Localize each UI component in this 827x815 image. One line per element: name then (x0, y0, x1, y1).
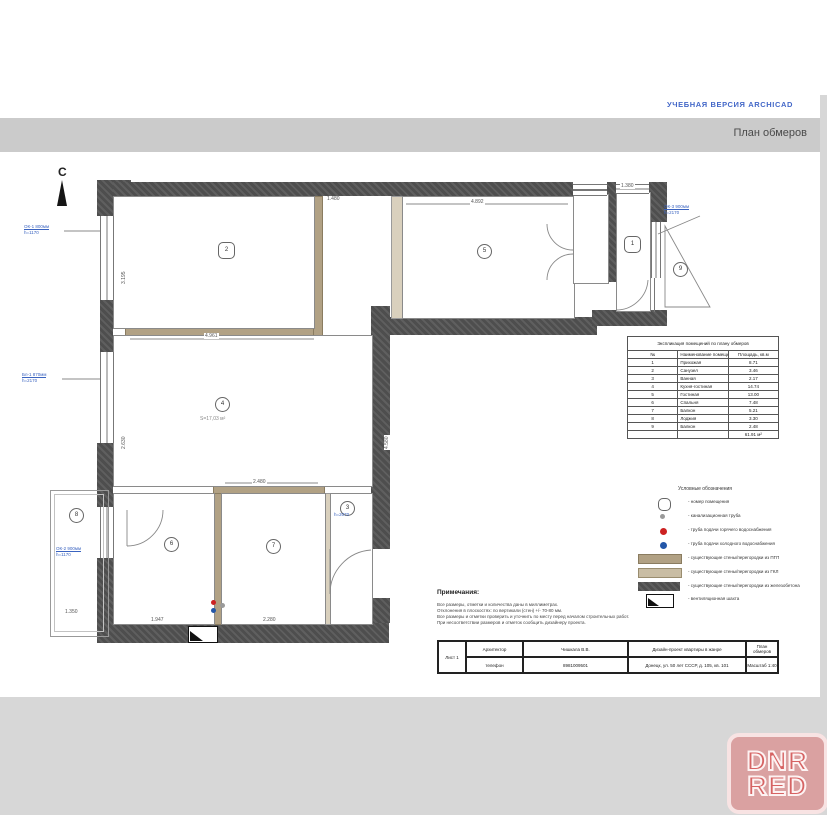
legend-label: труба подачи горячего водоснабжения (688, 527, 771, 532)
cell-name: Лоджия (678, 415, 728, 423)
dimension-label: 2.630 (121, 435, 127, 450)
vent-shaft-wedge (648, 598, 659, 606)
cell-area: 3.46 (728, 367, 778, 375)
table-row: 5Гостиная13.00 (628, 391, 779, 399)
table-total: 61.91 м² (728, 431, 778, 439)
legend-title: Условные обозначения (620, 486, 790, 492)
table-row: 4Кухня-гостиная14.74 (628, 383, 779, 391)
legend-label: существующие стены/перегородки из ПГП (688, 555, 779, 560)
cell-num: 8 (628, 415, 678, 423)
wall-segment (390, 317, 597, 335)
room-marker: 6 (164, 537, 179, 552)
table-row: 1Прихожая8.71 (628, 359, 779, 367)
screenshot-root: { "banner": { "trial": "УЧЕБНАЯ ВЕРСИЯ A… (0, 0, 827, 815)
dimension-label: 3.195 (121, 270, 127, 285)
stamp-address: Донецк, ул. 50 лет СССР, д. 105, кв. 101 (628, 657, 746, 673)
stamp-scale: Масштаб 1:40 (746, 657, 778, 673)
wall-segment (113, 182, 573, 196)
dimension-label: 1.480 (326, 196, 341, 202)
cell-num: 9 (628, 423, 678, 431)
sewer-pipe-icon (660, 514, 665, 519)
stamp-drawing-name: План обмеров (746, 641, 778, 657)
cell-area: 7.48 (728, 399, 778, 407)
table-row: 8Лоджия3.30 (628, 415, 779, 423)
col-header-name: Наименование помещения (678, 351, 728, 359)
cell-num: 2 (628, 367, 678, 375)
room-schedule-table: Экспликация помещений по плану обмеров №… (627, 336, 779, 439)
cell-num: 7 (628, 407, 678, 415)
cell-num: 6 (628, 399, 678, 407)
cell-name: Санузел (678, 367, 728, 375)
dimension-label: 4.580 (384, 435, 390, 450)
legend-label: труба подачи холодного водоснабжения (688, 541, 775, 546)
cell-name: Прихожая (678, 359, 728, 367)
cell-name: Спальня (678, 399, 728, 407)
room-bottom-middle (221, 493, 326, 625)
window-label-line2: h=1170 (56, 552, 71, 557)
cell-name: Ванная (678, 375, 728, 383)
room-marker: 2 (218, 242, 235, 259)
cell-area: 5.21 (728, 407, 778, 415)
stamp-phone: 8981009501 (523, 657, 628, 673)
window-label-ok1: ОК-1 800мм h=1170 (24, 224, 49, 236)
pgp-wall-swatch (638, 554, 682, 564)
stamp-role: Архитектор (466, 641, 523, 657)
vent-shaft-wedge (190, 631, 203, 641)
title-block: Архитектор Чишкала В.В. Дизайн-проект кв… (437, 640, 779, 674)
wall-segment (371, 306, 390, 549)
hot-water-icon (660, 528, 667, 535)
cell-num: 5 (628, 391, 678, 399)
cold-water-icon (660, 542, 667, 549)
cell-name: Балкон (678, 423, 728, 431)
dimension-label: 1.380 (620, 183, 635, 189)
cell-area: 8.71 (728, 359, 778, 367)
cell-name (678, 431, 728, 439)
room-marker: 7 (266, 539, 281, 554)
legend-label: существующие стены/перегородки из железо… (688, 583, 800, 588)
table-total-row: 61.91 м² (628, 431, 779, 439)
watermark-line2: RED (747, 774, 807, 799)
room-number-icon (658, 498, 671, 511)
background-right (820, 95, 827, 697)
stamp-phone-label: телефон (466, 657, 523, 673)
room-marker: 4 (215, 397, 230, 412)
cell-area: 2.48 (728, 423, 778, 431)
hot-water-icon (211, 600, 216, 605)
window-ok1 (100, 216, 114, 300)
cold-water-icon (211, 608, 216, 613)
window-ok3 (651, 222, 661, 278)
cell-area: 14.74 (728, 383, 778, 391)
room-kitchen-living (113, 335, 373, 487)
dimension-label: 2.280 (262, 617, 277, 623)
dimension-label: 1.947 (150, 617, 165, 623)
window-label-bl1: Бл-1 870мм h=2170 (22, 372, 46, 384)
room-bedroom-top-left (113, 196, 315, 329)
window-label-line2: h=2170 (22, 378, 37, 383)
cell-name: Балкон (678, 407, 728, 415)
window-label-line1: h=2070 (334, 512, 349, 517)
cell-num: 4 (628, 383, 678, 391)
wall-segment (100, 300, 113, 352)
gkl-wall-swatch (638, 568, 682, 578)
dimension-label: 4.961 (204, 333, 219, 339)
cell-name: Гостиная (678, 391, 728, 399)
legend-label: номер помещения (688, 499, 729, 504)
dimension-label: 4.892 (470, 199, 485, 205)
table-title: Экспликация помещений по плану обмеров (628, 337, 779, 351)
table-row: 7Балкон5.21 (628, 407, 779, 415)
legend-label: вентиляционная шахта (688, 596, 739, 601)
wall-segment (592, 310, 667, 326)
wall-segment (97, 623, 389, 643)
room-marker: 8 (69, 508, 84, 523)
note-line: При несоответствии размеров и отметок со… (437, 620, 586, 626)
window-label-ok2: ОК-2 900мм h=1170 (56, 546, 81, 558)
table-row: 6Спальня7.48 (628, 399, 779, 407)
stamp-author: Чишкала В.В. (523, 641, 628, 657)
stamp-project: Дизайн-проект квартиры в жанре (628, 641, 746, 657)
room-marker: 1 (624, 236, 641, 253)
vent-shaft-icon (188, 626, 218, 643)
sheet-title-band: План обмеров (0, 118, 827, 152)
cell-area: 2.17 (728, 375, 778, 383)
dnr-red-watermark: DNR RED (727, 733, 827, 814)
wall-segment (371, 598, 390, 623)
room-area-label: S=17,03 м² (200, 416, 225, 422)
north-arrow-label: С (58, 165, 67, 179)
background-bottom (0, 697, 827, 815)
cell-num (628, 431, 678, 439)
legend-label: канализационная труба (688, 513, 741, 518)
stamp-sheet: Лист 1 (438, 641, 466, 673)
window-label-ok3: ОК-3 900мм h=2170 (664, 204, 689, 216)
room-marker: 9 (673, 262, 688, 277)
col-header-area: Площадь, кв.м (728, 351, 778, 359)
archicad-trial-banner: УЧЕБНАЯ ВЕРСИЯ ARCHICAD (667, 100, 793, 109)
cell-num: 1 (628, 359, 678, 367)
window-label-line2: h=1170 (24, 230, 39, 235)
dimension-label: 1.350 (64, 609, 79, 615)
table-row: 2Санузел3.46 (628, 367, 779, 375)
cell-name: Кухня-гостиная (678, 383, 728, 391)
table-row: 9Балкон2.48 (628, 423, 779, 431)
legend-label: существующие стены/перегородки из ГКЛ (688, 569, 778, 574)
north-arrow-icon (57, 180, 67, 206)
concrete-wall-swatch (638, 582, 680, 591)
height-label: h=2070 (334, 512, 349, 518)
room-bottom-left (113, 493, 215, 625)
cell-area: 3.30 (728, 415, 778, 423)
table-row: 3Ванная2.17 (628, 375, 779, 383)
room-closet (573, 194, 609, 284)
wall-thin-line (654, 278, 655, 312)
notes-title: Примечания: (437, 589, 479, 596)
wall-segment (649, 182, 667, 222)
cell-area: 13.00 (728, 391, 778, 399)
dimension-label: 2.480 (252, 479, 267, 485)
window-closet-top (573, 184, 607, 196)
watermark-line1: DNR (747, 749, 809, 774)
window-label-line2: h=2170 (664, 210, 679, 215)
vent-shaft-icon (646, 594, 674, 608)
sewer-pipe-icon (220, 603, 225, 608)
window-bl1 (100, 352, 114, 443)
page-title: План обмеров (733, 127, 807, 139)
cell-num: 3 (628, 375, 678, 383)
room-marker: 5 (477, 244, 492, 259)
col-header-num: № (628, 351, 678, 359)
